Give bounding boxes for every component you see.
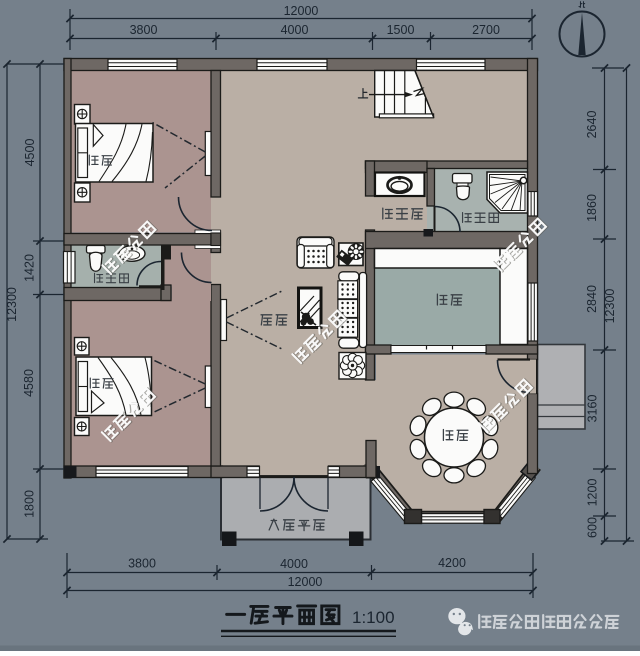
svg-text:12000: 12000 [288,575,323,589]
svg-text:3800: 3800 [128,557,156,571]
svg-text:1:100: 1:100 [352,608,395,627]
svg-text:4580: 4580 [22,369,36,397]
svg-text:4000: 4000 [280,557,308,571]
svg-text:4200: 4200 [438,556,466,570]
svg-text:2700: 2700 [472,23,500,37]
svg-text:12000: 12000 [284,4,319,18]
svg-text:1800: 1800 [23,490,37,518]
svg-text:1500: 1500 [387,23,415,37]
svg-text:2840: 2840 [585,285,599,313]
svg-text:12300: 12300 [5,287,19,322]
svg-text:3800: 3800 [130,23,158,37]
svg-text:3160: 3160 [586,395,600,423]
svg-text:1860: 1860 [585,194,599,222]
svg-text:1200: 1200 [586,479,600,507]
svg-text:4000: 4000 [281,23,309,37]
svg-text:12300: 12300 [603,289,617,324]
svg-text:2640: 2640 [585,111,599,139]
svg-text:600: 600 [586,517,600,538]
svg-text:4500: 4500 [23,139,37,167]
svg-text:1420: 1420 [23,254,37,282]
